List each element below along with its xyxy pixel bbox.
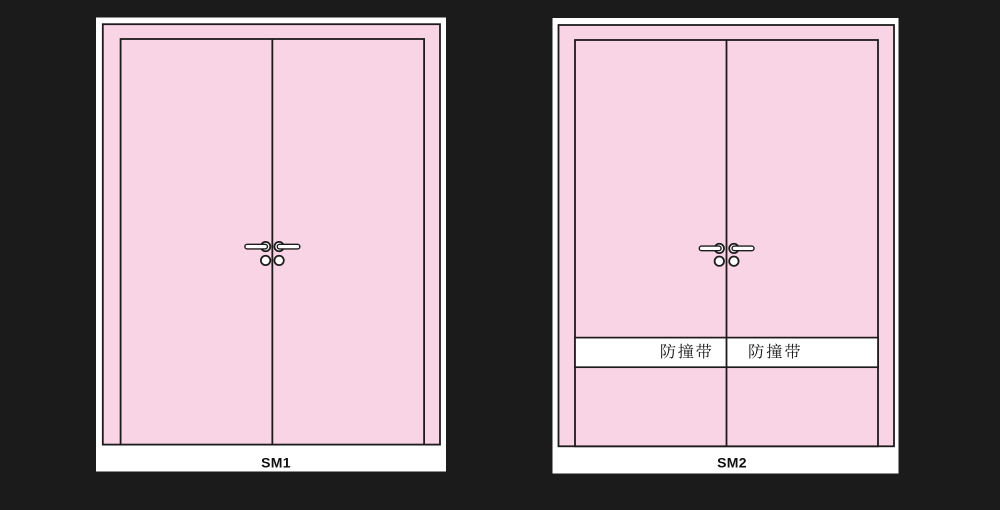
svg-text:SM1: SM1 <box>261 455 291 471</box>
svg-text:SM2: SM2 <box>717 455 747 471</box>
